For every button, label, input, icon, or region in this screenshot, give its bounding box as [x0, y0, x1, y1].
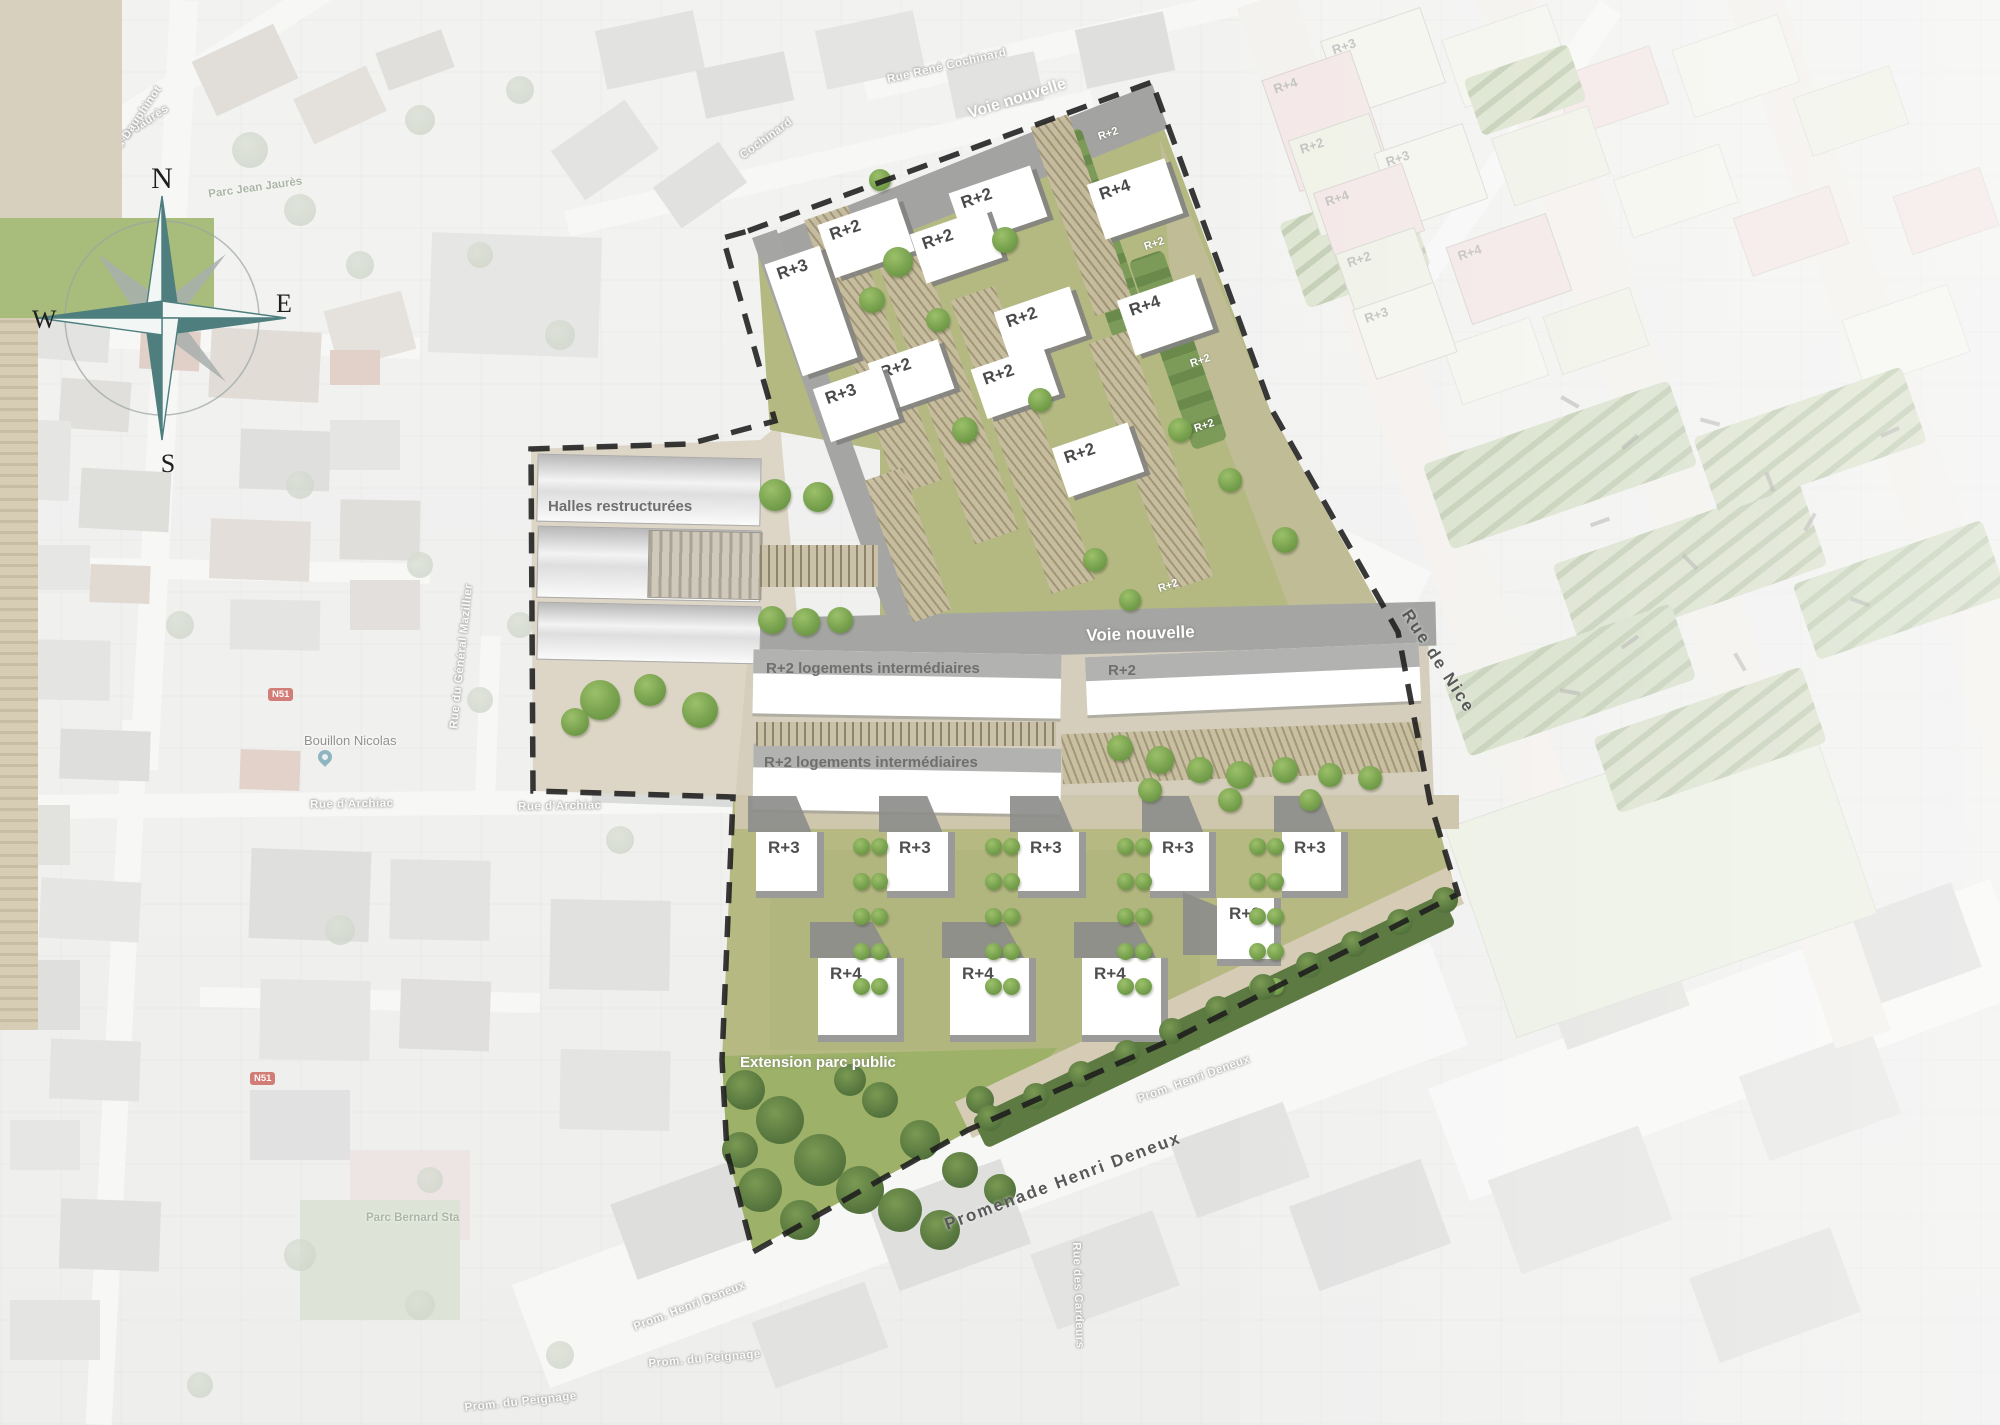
- hedge-tree: [977, 1105, 1003, 1131]
- compass-rose: N E S W: [30, 156, 294, 480]
- orchard-tree: [1117, 873, 1134, 890]
- site-tree: [1218, 788, 1242, 812]
- building-label: R+3: [1282, 832, 1341, 858]
- hedge-tree: [1387, 909, 1413, 935]
- building-label: R+3: [887, 832, 948, 858]
- park-tree: [900, 1120, 940, 1160]
- site-tree: [952, 417, 978, 443]
- site-tree: [1146, 746, 1174, 774]
- site-tree: [1218, 468, 1242, 492]
- area-label: R+2 logements intermédiaires: [764, 754, 978, 771]
- site-tree: [869, 169, 891, 191]
- orchard-tree: [871, 943, 888, 960]
- orchard-tree: [853, 908, 870, 925]
- halle-roof: [536, 454, 761, 527]
- building: R+3: [1018, 832, 1086, 898]
- area-label: R+2 logements intermédiaires: [766, 660, 980, 677]
- hedge-tree: [1159, 1018, 1185, 1044]
- compass-west-label: W: [32, 305, 57, 334]
- orchard-tree: [1135, 978, 1152, 995]
- orchard-tree: [1003, 838, 1020, 855]
- building: R+3: [1282, 832, 1348, 898]
- site-tree: [1028, 388, 1052, 412]
- building-label: R+3: [756, 832, 817, 858]
- orchard-tree: [1249, 873, 1266, 890]
- orchard-tree: [871, 838, 888, 855]
- plaza-garden-strip: [760, 545, 878, 587]
- park-tree: [942, 1152, 978, 1188]
- area-label: Halles restructurées: [548, 498, 692, 515]
- orchard-tree: [1267, 873, 1284, 890]
- orchard-tree: [1117, 978, 1134, 995]
- orchard-tree: [1003, 943, 1020, 960]
- park-tree: [780, 1200, 820, 1240]
- orchard-tree: [871, 908, 888, 925]
- site-tree: [859, 287, 885, 313]
- site-tree: [1187, 757, 1213, 783]
- orchard-tree: [985, 908, 1002, 925]
- site-street-label: Voie nouvelle: [1086, 622, 1195, 646]
- site-tree: [792, 608, 820, 636]
- orchard-tree: [853, 978, 870, 995]
- building: R+4: [1082, 958, 1168, 1042]
- site-tree: [759, 479, 791, 511]
- orchard-tree: [985, 943, 1002, 960]
- orchard-tree: [1135, 908, 1152, 925]
- park-tree: [862, 1082, 898, 1118]
- site-tree: [1226, 761, 1254, 789]
- orchard-tree: [1135, 838, 1152, 855]
- site-tree: [1138, 778, 1162, 802]
- orchard-tree: [871, 873, 888, 890]
- site-tree: [758, 606, 786, 634]
- orchard-tree: [1249, 943, 1266, 960]
- orchard-tree: [1267, 838, 1284, 855]
- hedge-tree: [1205, 996, 1231, 1022]
- parking-strip: [756, 722, 1056, 746]
- site-tree: [1107, 735, 1133, 761]
- site-street-label: Extension parc public: [740, 1054, 896, 1071]
- building-label: R+3: [1018, 832, 1079, 858]
- orchard-tree: [1117, 908, 1134, 925]
- orchard-tree: [1267, 908, 1284, 925]
- site-tree: [926, 308, 950, 332]
- park-tree: [878, 1188, 922, 1232]
- orchard-tree: [853, 943, 870, 960]
- orchard-tree: [985, 838, 1002, 855]
- halle-roof: [536, 602, 761, 665]
- orchard-tree: [871, 978, 888, 995]
- compass-south-label: S: [161, 449, 175, 478]
- park-tree: [722, 1132, 758, 1168]
- hedge-tree: [1023, 1083, 1049, 1109]
- park-tree: [836, 1166, 884, 1214]
- project-site-plan: R+3R+2R+2R+2R+2R+2R+3R+2R+4R+4R+2R+2R+2R…: [0, 0, 2000, 1425]
- orchard-tree: [1003, 873, 1020, 890]
- orchard-tree: [1117, 943, 1134, 960]
- orchard-tree: [1249, 908, 1266, 925]
- site-tree: [1318, 763, 1342, 787]
- hedge-tree: [1341, 931, 1367, 957]
- hedge-tree: [1296, 952, 1322, 978]
- hedge-tree: [1114, 1040, 1140, 1066]
- park-tree: [756, 1096, 804, 1144]
- compass-north-label: N: [151, 162, 173, 195]
- site-tree: [1299, 789, 1321, 811]
- site-tree: [1272, 757, 1298, 783]
- orchard-tree: [1003, 978, 1020, 995]
- site-tree: [1119, 589, 1141, 611]
- orchard-tree: [1135, 943, 1152, 960]
- building: R+3: [1150, 832, 1216, 898]
- park-tree: [738, 1168, 782, 1212]
- site-tree: [883, 247, 913, 277]
- hedge-tree: [1432, 887, 1458, 913]
- building-label: R+3: [1150, 832, 1209, 858]
- orchard-tree: [853, 838, 870, 855]
- hedge-tree: [1250, 974, 1276, 1000]
- wood-deck: [647, 530, 762, 600]
- orchard-tree: [985, 873, 1002, 890]
- compass-cardinal-points: [38, 196, 286, 440]
- site-tree: [1083, 548, 1107, 572]
- site-tree: [827, 607, 853, 633]
- building: R+4: [950, 958, 1036, 1042]
- site-tree: [1168, 418, 1192, 442]
- orchard-tree: [1249, 838, 1266, 855]
- building-label: R+3: [1217, 898, 1274, 924]
- orchard-tree: [1135, 873, 1152, 890]
- orchard-tree: [1003, 908, 1020, 925]
- site-tree: [682, 692, 718, 728]
- site-tree: [992, 227, 1018, 253]
- building: R+4: [818, 958, 904, 1042]
- park-tree: [725, 1070, 765, 1110]
- site-tree: [634, 674, 666, 706]
- orchard-tree: [1267, 943, 1284, 960]
- site-tree: [1272, 527, 1298, 553]
- site-tree: [1358, 766, 1382, 790]
- site-tree: [803, 482, 833, 512]
- area-label: R+2: [1108, 662, 1136, 679]
- building: R+3: [756, 832, 824, 898]
- building: R+3: [887, 832, 955, 898]
- orchard-tree: [1117, 838, 1134, 855]
- orchard-tree: [853, 873, 870, 890]
- orchard-tree: [985, 978, 1002, 995]
- masterplan-map: R+3R+4R+2R+3R+4R+2R+4R+3 Avenue Jean Jau…: [0, 0, 2000, 1425]
- site-tree: [561, 708, 589, 736]
- compass-east-label: E: [276, 289, 292, 318]
